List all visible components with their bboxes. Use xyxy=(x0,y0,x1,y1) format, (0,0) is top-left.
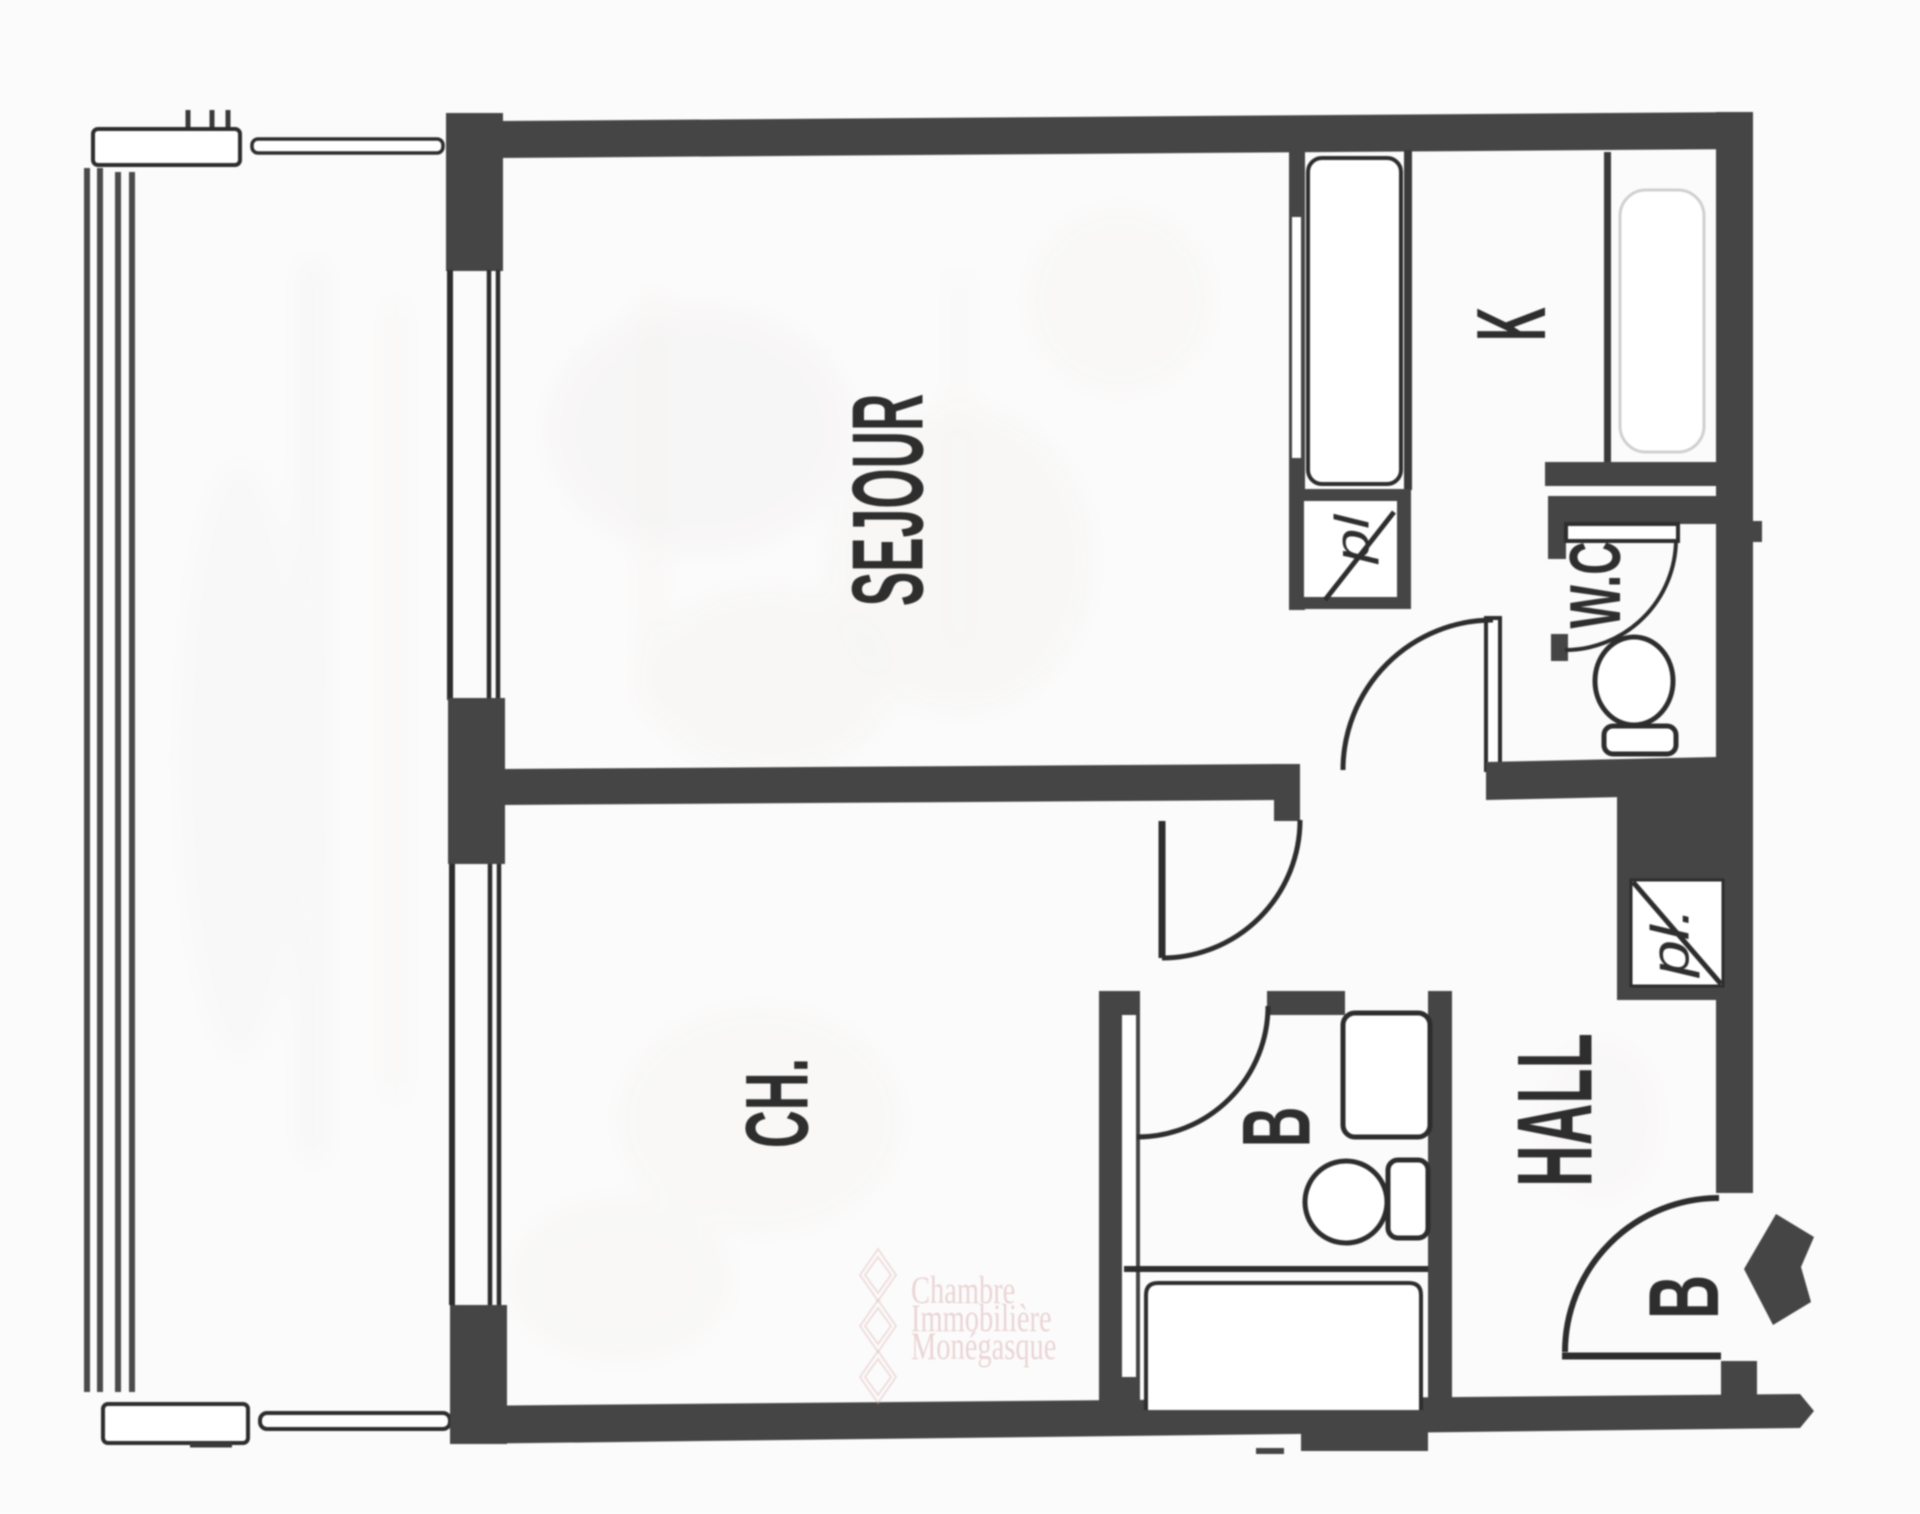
svg-text:Monégasque: Monégasque xyxy=(911,1326,1056,1368)
svg-text:B: B xyxy=(1222,1107,1331,1148)
svg-text:SEJOUR: SEJOUR xyxy=(832,394,945,607)
svg-text:B: B xyxy=(1629,1275,1740,1319)
svg-text:W.C: W.C xyxy=(1555,541,1636,628)
svg-text:CH.: CH. xyxy=(728,1058,827,1148)
svg-text:pl: pl xyxy=(1325,513,1379,565)
svg-text:K: K xyxy=(1457,307,1567,341)
svg-text:HALL: HALL xyxy=(1495,1033,1615,1186)
svg-text:pl.: pl. xyxy=(1640,907,1700,978)
